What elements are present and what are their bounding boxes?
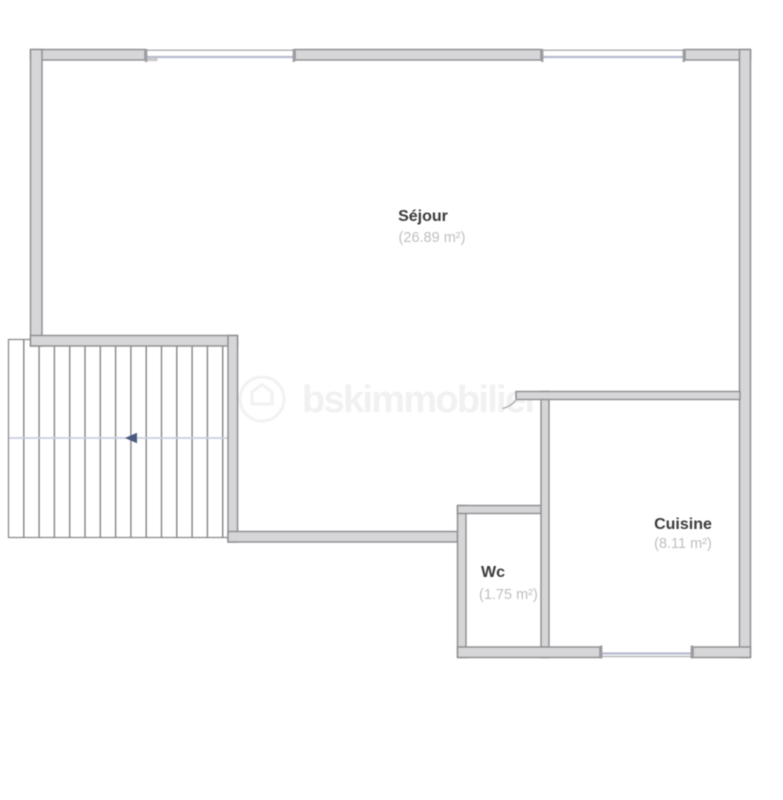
svg-text:bskimmobilier: bskimmobilier (302, 379, 539, 421)
svg-text:Wc: Wc (481, 564, 505, 581)
svg-text:(1.75 m²): (1.75 m²) (479, 587, 538, 603)
svg-text:(8.11 m²): (8.11 m²) (654, 536, 712, 552)
svg-text:(26.89 m²): (26.89 m²) (399, 230, 466, 246)
svg-text:Séjour: Séjour (398, 208, 448, 225)
svg-text:Cuisine: Cuisine (654, 516, 712, 533)
